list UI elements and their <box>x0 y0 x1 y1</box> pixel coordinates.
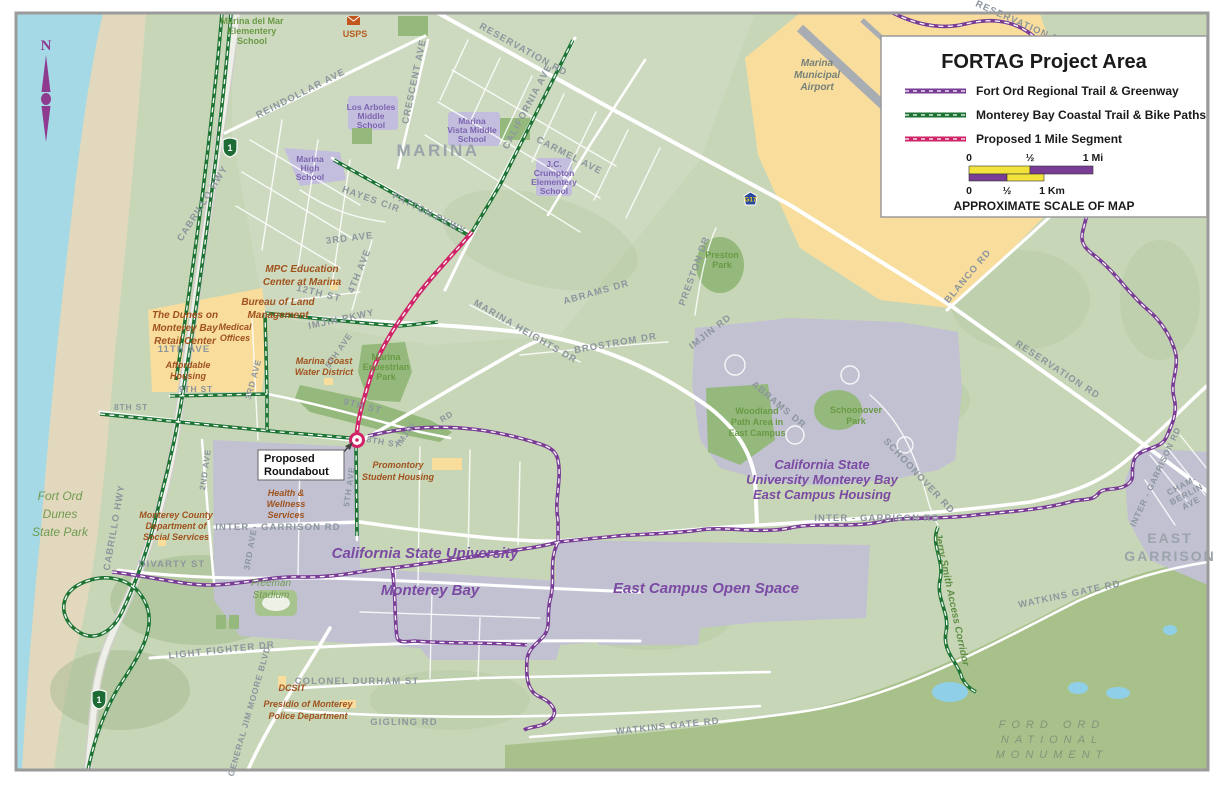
label-medical-2: Offices <box>220 333 250 343</box>
scale-km-1: 1 Km <box>1039 185 1065 197</box>
compass-hub <box>41 93 51 105</box>
scale-km-purple <box>969 174 1007 181</box>
label-preston-park-1: Preston <box>705 250 739 260</box>
fortag-map: Marina del Mar Elementery School USPS RE… <box>0 0 1224 792</box>
label-preston-park-2: Park <box>712 260 733 270</box>
label-presidio-1: Presidio of Monterey <box>263 699 353 709</box>
label-los-arboles-3: School <box>357 120 385 130</box>
label-inter-garrison-w: INTER - GARRISON RD <box>215 522 340 533</box>
label-blm-2: Management <box>247 310 309 321</box>
label-equestrian-1: Marina <box>371 352 401 362</box>
label-dcsit: DCSIT <box>279 683 308 693</box>
label-open-space: East Campus Open Space <box>613 580 799 597</box>
label-county-social-2: Department of <box>145 521 207 531</box>
label-schoonover-park-1: Schoonover <box>830 405 883 415</box>
label-dunes-retail-2: Monterey Bay <box>152 323 218 334</box>
label-fort-ord-dunes-3: State Park <box>32 525 89 539</box>
highway-shield-1b: 1 <box>92 690 106 709</box>
label-equestrian-2: Equestrian <box>363 362 410 372</box>
label-woodland-2: Path Area in <box>731 417 783 427</box>
label-dunes-retail-1: The Dunes on <box>152 310 218 321</box>
scale-mi-purple <box>1030 166 1093 174</box>
legend-label-fortag: Fort Ord Regional Trail & Greenway <box>976 84 1179 98</box>
label-colonel-durham: COLONEL DURHAM ST <box>295 676 420 687</box>
callout-line-2: Roundabout <box>264 466 329 478</box>
label-8th-st-w: 8TH ST <box>114 402 148 412</box>
highway-1-shield-label: 1 <box>227 143 232 153</box>
label-fort-ord-dunes-2: Dunes <box>43 507 78 521</box>
label-freeman-2: Stadium <box>253 590 290 601</box>
scale-mi-yellow <box>969 166 1030 174</box>
label-presidio-2: Police Department <box>268 711 348 721</box>
label-woodland-3: East Campus <box>728 428 785 438</box>
label-east-garrison-1: EAST <box>1147 530 1192 546</box>
label-marina-del-mar-2: Elementery <box>228 26 277 36</box>
label-monument-3: MONUMENT <box>996 749 1109 761</box>
label-promontory-2: Student Housing <box>362 472 434 482</box>
scale-mi-1: 1 Mi <box>1083 152 1104 164</box>
label-equestrian-3: Park <box>376 372 397 382</box>
label-health-1: Health & <box>268 488 305 498</box>
roundabout-marker-dot <box>355 438 359 442</box>
label-mpc-2: Center at Marina <box>263 277 342 288</box>
label-county-social-3: Social Services <box>143 532 209 542</box>
scale-mi-half: ½ <box>1026 152 1035 164</box>
label-woodland-1: Woodland <box>735 406 778 416</box>
label-usps: USPS <box>343 29 368 39</box>
scale-km-yellow <box>1007 174 1044 181</box>
legend: FORTAG Project Area Fort Ord Regional Tr… <box>881 36 1207 217</box>
label-airport-2: Municipal <box>794 70 840 81</box>
legend-label-coastal: Monterey Bay Coastal Trail & Bike Paths <box>976 108 1206 122</box>
label-csumb-east-3: East Campus Housing <box>753 487 891 502</box>
label-affordable-1: Affordable <box>165 360 211 370</box>
scale-km-0: 0 <box>966 185 972 197</box>
label-marina-del-mar-1: Marina del Mar <box>220 16 284 26</box>
label-9th-st-w: 9TH ST <box>179 384 213 394</box>
label-gigling-rd: GIGLING RD <box>370 717 437 728</box>
label-monument-1: FORD ORD <box>999 719 1106 731</box>
label-fort-ord-dunes-1: Fort Ord <box>38 489 83 503</box>
label-water-district-2: Water District <box>295 367 354 377</box>
label-marina-vista-3: School <box>458 134 486 144</box>
g17-shield-label: G17 <box>744 197 757 204</box>
label-inter-garrison-e: INTER - GARRISON RD <box>814 513 939 524</box>
label-health-3: Services <box>267 510 304 520</box>
label-csumb-east-1: California State <box>774 457 869 472</box>
label-marina-high-3: School <box>296 172 324 182</box>
scale-caption: APPROXIMATE SCALE OF MAP <box>953 199 1134 213</box>
legend-label-proposed: Proposed 1 Mile Segment <box>976 132 1122 146</box>
label-freeman-1: Freeman <box>251 578 291 589</box>
label-jc-crumpton-4: School <box>540 186 568 196</box>
label-monument-2: NATIONAL <box>1001 734 1103 746</box>
label-divarty-st: DIVARTY ST <box>139 559 206 570</box>
highway-shield-1a: 1 <box>223 138 237 157</box>
label-county-social-1: Monterey County <box>139 510 213 520</box>
label-medical-1: Medical <box>218 322 252 332</box>
label-schoonover-park-2: Park <box>846 416 867 426</box>
label-airport-1: Marina <box>801 58 834 69</box>
callout-line-1: Proposed <box>264 453 315 465</box>
compass-north-label: N <box>41 38 52 54</box>
label-11th-ave: 11TH AVE <box>158 344 211 355</box>
label-health-2: Wellness <box>267 499 306 509</box>
label-marina-del-mar-3: School <box>237 36 267 46</box>
label-mpc-1: MPC Education <box>265 264 338 275</box>
scale-km-half: ½ <box>1003 185 1012 197</box>
label-affordable-2: Housing <box>170 371 206 381</box>
label-csumb-2: Monterey Bay <box>381 582 480 599</box>
scale-mi-0: 0 <box>966 152 972 164</box>
label-csumb-east-2: University Monterey Bay <box>746 472 898 487</box>
label-csumb-1: California State University <box>332 545 519 562</box>
label-east-garrison-2: GARRISON <box>1124 548 1215 564</box>
highway-1-shield-label-b: 1 <box>96 695 101 705</box>
label-blm-1: Bureau of Land <box>241 297 315 308</box>
label-airport-3: Airport <box>799 82 834 93</box>
label-promontory-1: Promontory <box>372 460 424 470</box>
legend-title: FORTAG Project Area <box>941 51 1147 73</box>
